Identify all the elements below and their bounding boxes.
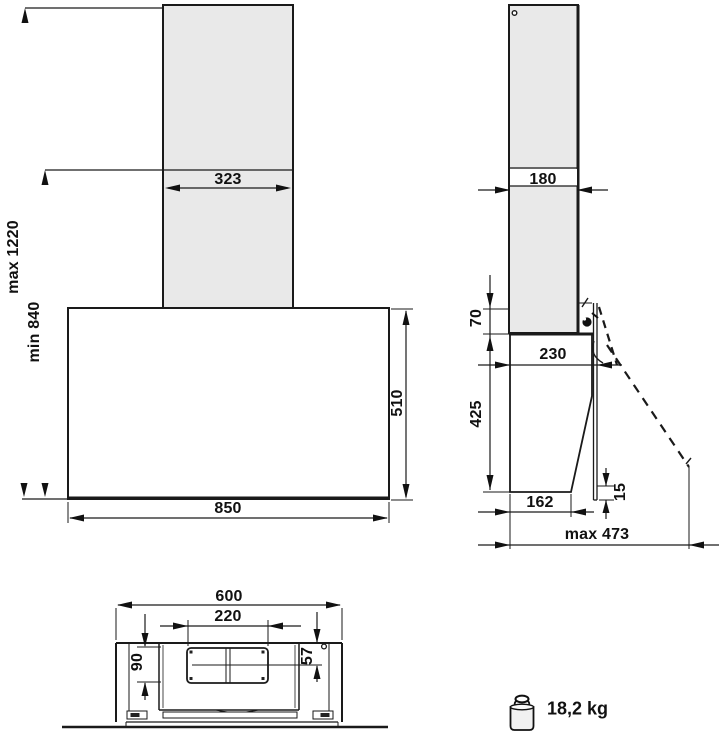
filter-bar — [163, 712, 297, 718]
dim-depth-bottom: 162 — [526, 495, 553, 511]
side-view — [478, 5, 719, 549]
weight-icon — [511, 696, 534, 730]
hood-body-front — [68, 308, 389, 499]
drawing-lines — [0, 0, 722, 738]
swing-arc — [593, 341, 603, 363]
dim-side-body-height: 425 — [469, 400, 485, 427]
dim-chimney-depth: 180 — [529, 172, 556, 188]
dim-chimney-width: 323 — [214, 172, 241, 188]
weight-label: 18,2 kg — [547, 699, 608, 720]
dim-duct-cutout-depth: 90 — [130, 653, 146, 671]
open-panel-dashed-line — [607, 345, 689, 467]
mounting-clip — [313, 711, 333, 719]
front-view — [21, 5, 414, 523]
chimney-front — [163, 5, 293, 308]
dim-panel-above-body: 70 — [469, 309, 485, 327]
dim-duct-center-offset: 57 — [300, 647, 316, 665]
mounting-clip — [127, 711, 147, 719]
technical-drawing: 323 850 510 max 1220 min 840 180 70 230 … — [0, 0, 722, 738]
front-panel-side — [594, 303, 598, 500]
hinge-icon — [582, 313, 598, 327]
open-panel-dashed-line — [599, 307, 617, 365]
dim-depth-top: 230 — [539, 347, 566, 363]
dim-open-panel-depth: max 473 — [565, 527, 630, 543]
dim-duct-cutout-width: 220 — [214, 609, 241, 625]
screw-icon — [512, 11, 517, 16]
dim-panel-bottom-offset: 15 — [613, 483, 629, 501]
dim-install-height-min: min 840 — [27, 302, 43, 363]
dim-hood-width: 600 — [215, 589, 242, 605]
dim-install-height-max: max 1220 — [6, 220, 22, 294]
dim-body-width: 850 — [214, 501, 241, 517]
screw-icon — [322, 644, 327, 649]
dim-body-height: 510 — [390, 389, 406, 416]
